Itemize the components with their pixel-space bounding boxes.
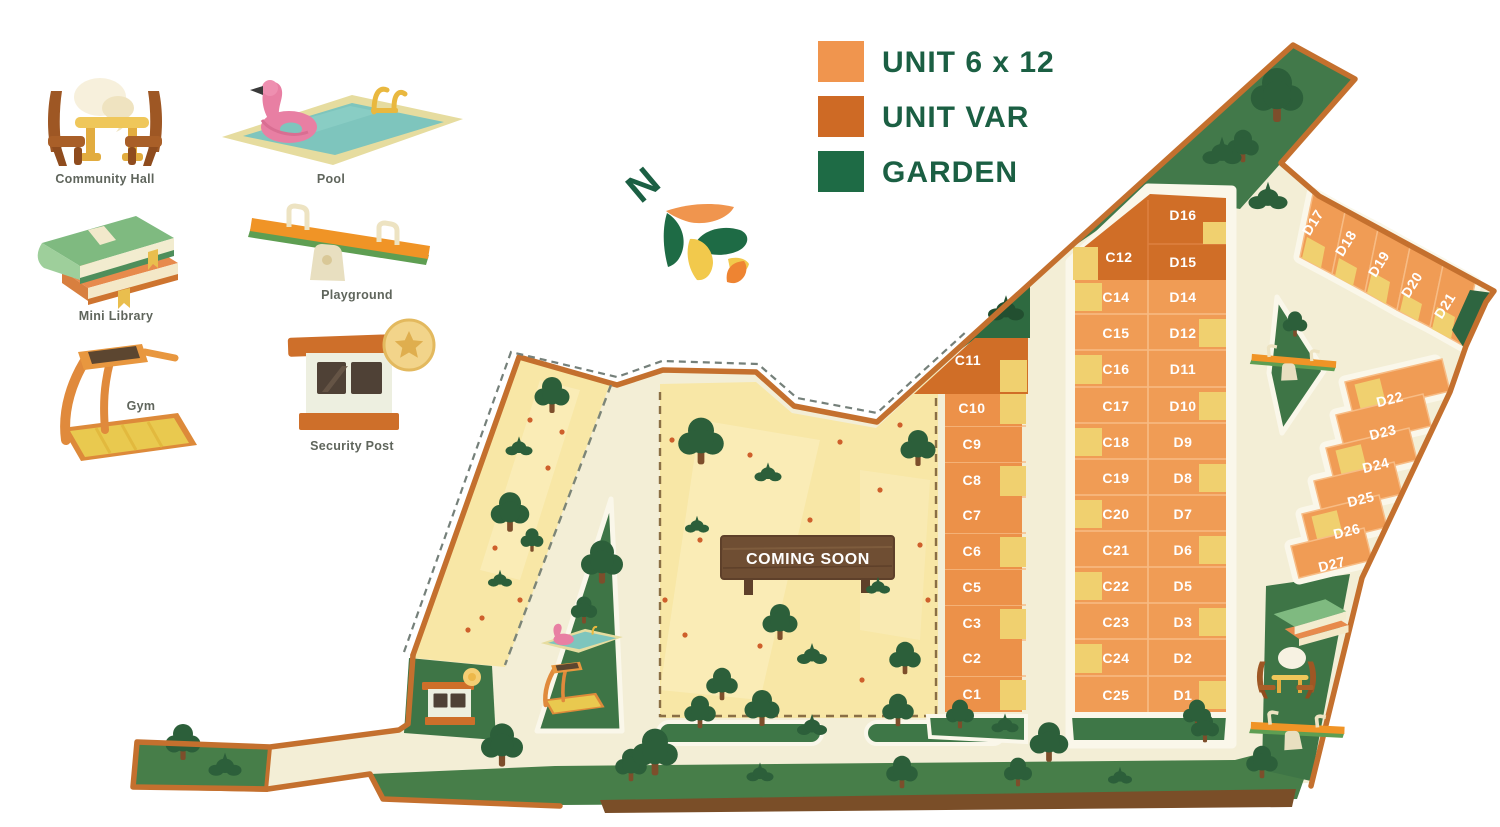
svg-text:C8: C8 (963, 472, 982, 488)
svg-text:D6: D6 (1174, 542, 1193, 558)
svg-text:UNIT VAR: UNIT VAR (882, 101, 1029, 134)
svg-text:D16: D16 (1169, 207, 1196, 223)
svg-text:D3: D3 (1174, 614, 1193, 630)
svg-text:C12: C12 (1105, 249, 1132, 265)
svg-text:C17: C17 (1102, 398, 1129, 414)
svg-text:C18: C18 (1102, 434, 1129, 450)
svg-text:D2: D2 (1174, 650, 1193, 666)
svg-text:Pool: Pool (317, 172, 345, 186)
svg-text:D12: D12 (1169, 325, 1196, 341)
svg-text:GARDEN: GARDEN (882, 156, 1018, 189)
svg-text:D15: D15 (1169, 254, 1196, 270)
svg-text:C5: C5 (963, 579, 982, 595)
svg-text:D14: D14 (1169, 289, 1196, 305)
svg-text:D11: D11 (1170, 361, 1196, 377)
svg-text:C25: C25 (1102, 687, 1129, 703)
svg-text:C1: C1 (963, 686, 982, 702)
svg-text:Community Hall: Community Hall (55, 172, 154, 186)
svg-text:C14: C14 (1102, 289, 1129, 305)
svg-text:C20: C20 (1102, 506, 1129, 522)
svg-text:C16: C16 (1102, 361, 1129, 377)
svg-text:Gym: Gym (127, 399, 156, 413)
svg-text:C15: C15 (1102, 325, 1129, 341)
svg-text:D10: D10 (1169, 398, 1196, 414)
svg-text:C2: C2 (963, 650, 982, 666)
svg-text:UNIT 6 x 12: UNIT 6 x 12 (882, 46, 1055, 79)
svg-text:Security Post: Security Post (310, 439, 394, 453)
svg-text:Playground: Playground (321, 288, 393, 302)
svg-text:C3: C3 (963, 615, 982, 631)
svg-text:D1: D1 (1174, 687, 1193, 703)
svg-text:C9: C9 (963, 436, 982, 452)
svg-text:D7: D7 (1174, 506, 1193, 522)
svg-text:C7: C7 (963, 507, 982, 523)
svg-text:D8: D8 (1174, 470, 1193, 486)
svg-text:C19: C19 (1102, 470, 1129, 486)
svg-text:C6: C6 (963, 543, 982, 559)
svg-text:C24: C24 (1102, 650, 1129, 666)
svg-text:Mini Library: Mini Library (79, 309, 153, 323)
svg-text:C22: C22 (1102, 578, 1129, 594)
svg-text:C10: C10 (958, 400, 985, 416)
svg-text:D5: D5 (1174, 578, 1193, 594)
svg-text:COMING SOON: COMING SOON (746, 551, 870, 568)
svg-text:D9: D9 (1174, 434, 1193, 450)
svg-text:C21: C21 (1102, 542, 1129, 558)
svg-text:C11: C11 (955, 352, 981, 368)
svg-text:C23: C23 (1102, 614, 1129, 630)
